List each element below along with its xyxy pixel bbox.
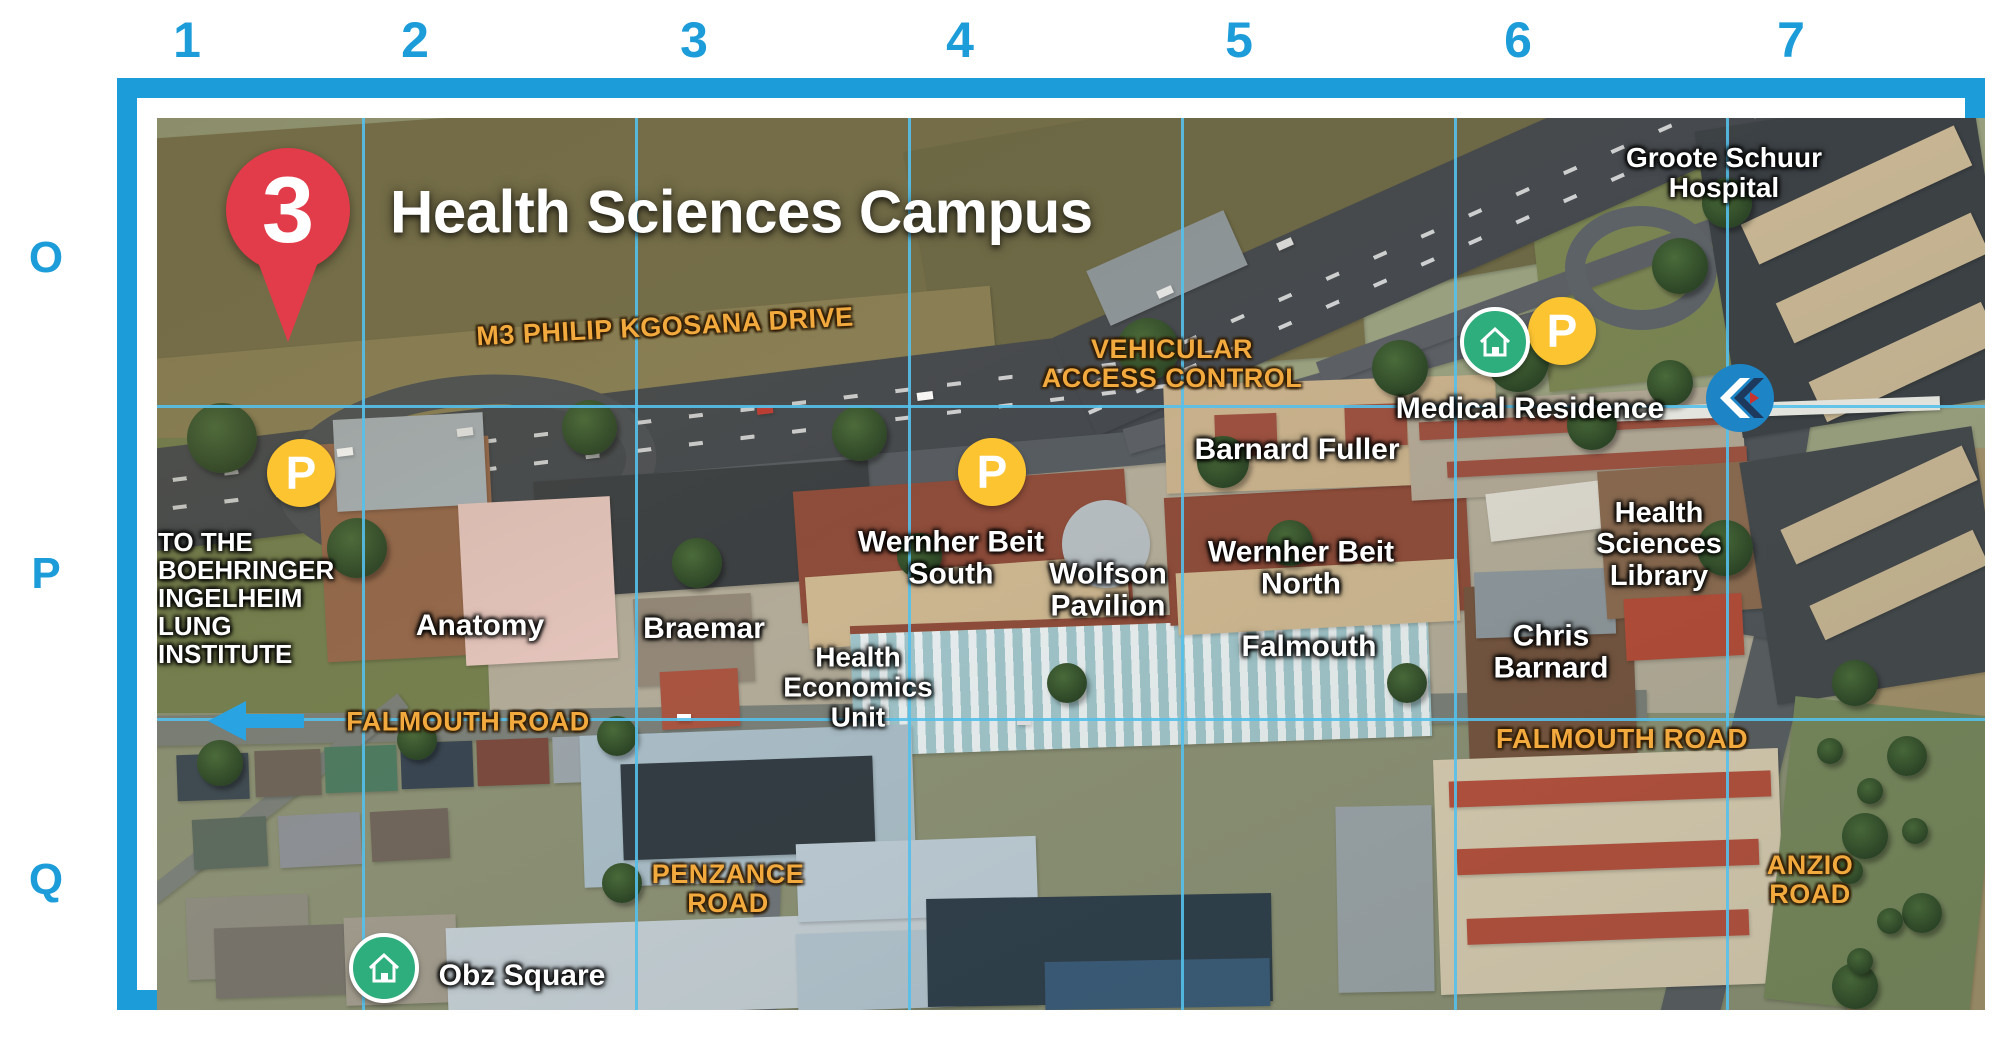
map-label-chris-barnard: ChrisBarnard — [1493, 621, 1608, 686]
photo-shape — [1335, 805, 1434, 993]
tree — [1902, 893, 1942, 933]
map-label-falmouth-road-west: FALMOUTH ROAD — [346, 707, 589, 736]
tree — [1902, 818, 1928, 844]
map-label-health-economics-unit: HealthEconomicsUnit — [783, 643, 932, 734]
tree — [1877, 908, 1903, 934]
photo-shape — [278, 812, 363, 868]
residence-home-icon — [1460, 307, 1530, 377]
tree — [1047, 663, 1087, 703]
map-label-wernher-beit-south: Wernher BeitSouth — [858, 527, 1044, 592]
parking-icon: P — [267, 439, 335, 507]
tree — [1887, 736, 1927, 776]
map-label-vehicular-access-control: VEHICULARACCESS CONTROL — [1042, 335, 1303, 393]
map-label-anzio-road: ANZIOROAD — [1767, 851, 1854, 909]
map-label-braemar: Braemar — [643, 613, 765, 645]
grid-vline — [635, 118, 638, 1010]
map-frame: Groote SchuurHospitalM3 PHILIP KGOSANA D… — [117, 78, 1985, 1010]
parking-icon: P — [958, 438, 1026, 506]
direction-arrow-left-icon — [208, 701, 308, 741]
map-label-penzance-road: PENZANCEROAD — [652, 860, 805, 918]
parking-icon: P — [1528, 297, 1596, 365]
residence-home-icon — [349, 933, 419, 1003]
photo-shape — [850, 606, 1432, 756]
map-label-falmouth-building: Falmouth — [1242, 631, 1377, 663]
map-label-groote-schuur-hospital: Groote SchuurHospital — [1626, 143, 1822, 203]
grid-column-7: 7 — [1777, 12, 1805, 68]
tree — [1857, 778, 1883, 804]
location-pin-number: 3 — [226, 148, 350, 272]
grid-row-P: P — [20, 549, 72, 599]
campus-map-page: 1234567 OPQ Groote SchuurHospitalM3 PHIL… — [0, 0, 2000, 1039]
tree — [672, 538, 722, 588]
photo-shape — [476, 738, 550, 786]
location-pin-3: 3 — [226, 148, 350, 342]
map-title: Health Sciences Campus — [390, 178, 1093, 247]
map-label-barnard-fuller: Barnard Fuller — [1194, 434, 1399, 466]
map-label-obz-square: Obz Square — [439, 960, 606, 992]
photo-shape — [370, 808, 451, 862]
grid-column-5: 5 — [1225, 12, 1253, 68]
tree — [597, 716, 637, 756]
photo-shape — [324, 745, 398, 793]
location-pin-tail — [255, 254, 321, 342]
grid-vline — [1726, 118, 1729, 1010]
tree — [832, 406, 887, 461]
map-label-anatomy: Anatomy — [416, 610, 544, 642]
grid-column-6: 6 — [1504, 12, 1532, 68]
tree — [1847, 948, 1873, 974]
tree — [197, 740, 243, 786]
chevron-shuttle-icon — [1706, 364, 1774, 437]
tree — [1387, 663, 1427, 703]
grid-row-Q: Q — [20, 855, 72, 905]
tree — [1652, 238, 1708, 294]
tree — [1372, 340, 1428, 396]
photo-shape — [214, 924, 358, 999]
grid-vline — [1181, 118, 1184, 1010]
map-label-wernher-beit-north: Wernher BeitNorth — [1208, 537, 1394, 602]
map-label-falmouth-road-east: FALMOUTH ROAD — [1496, 724, 1748, 754]
grid-vline — [362, 118, 365, 1010]
photo-shape — [1045, 958, 1271, 1010]
grid-vline — [1454, 118, 1457, 1010]
grid-column-3: 3 — [680, 12, 708, 68]
grid-column-4: 4 — [946, 12, 974, 68]
grid-column-1: 1 — [173, 12, 201, 68]
tree — [562, 400, 617, 455]
aerial-photo: Groote SchuurHospitalM3 PHILIP KGOSANA D… — [157, 118, 1985, 1010]
grid-column-2: 2 — [401, 12, 429, 68]
photo-shape — [254, 749, 322, 797]
tree — [1832, 660, 1878, 706]
tree — [187, 403, 257, 473]
map-label-medical-residence: Medical Residence — [1396, 393, 1664, 425]
map-label-wolfson-pavilion: WolfsonPavilion — [1049, 559, 1167, 624]
map-label-to-the-boehringer-ingelheim-lung-institute: TO THEBOEHRINGERINGELHEIMLUNGINSTITUTE — [158, 528, 334, 668]
tree — [327, 518, 387, 578]
photo-shape — [192, 816, 269, 870]
tree — [1817, 738, 1843, 764]
map-label-health-sciences-library: HealthSciencesLibrary — [1596, 498, 1722, 592]
grid-row-O: O — [20, 233, 72, 283]
